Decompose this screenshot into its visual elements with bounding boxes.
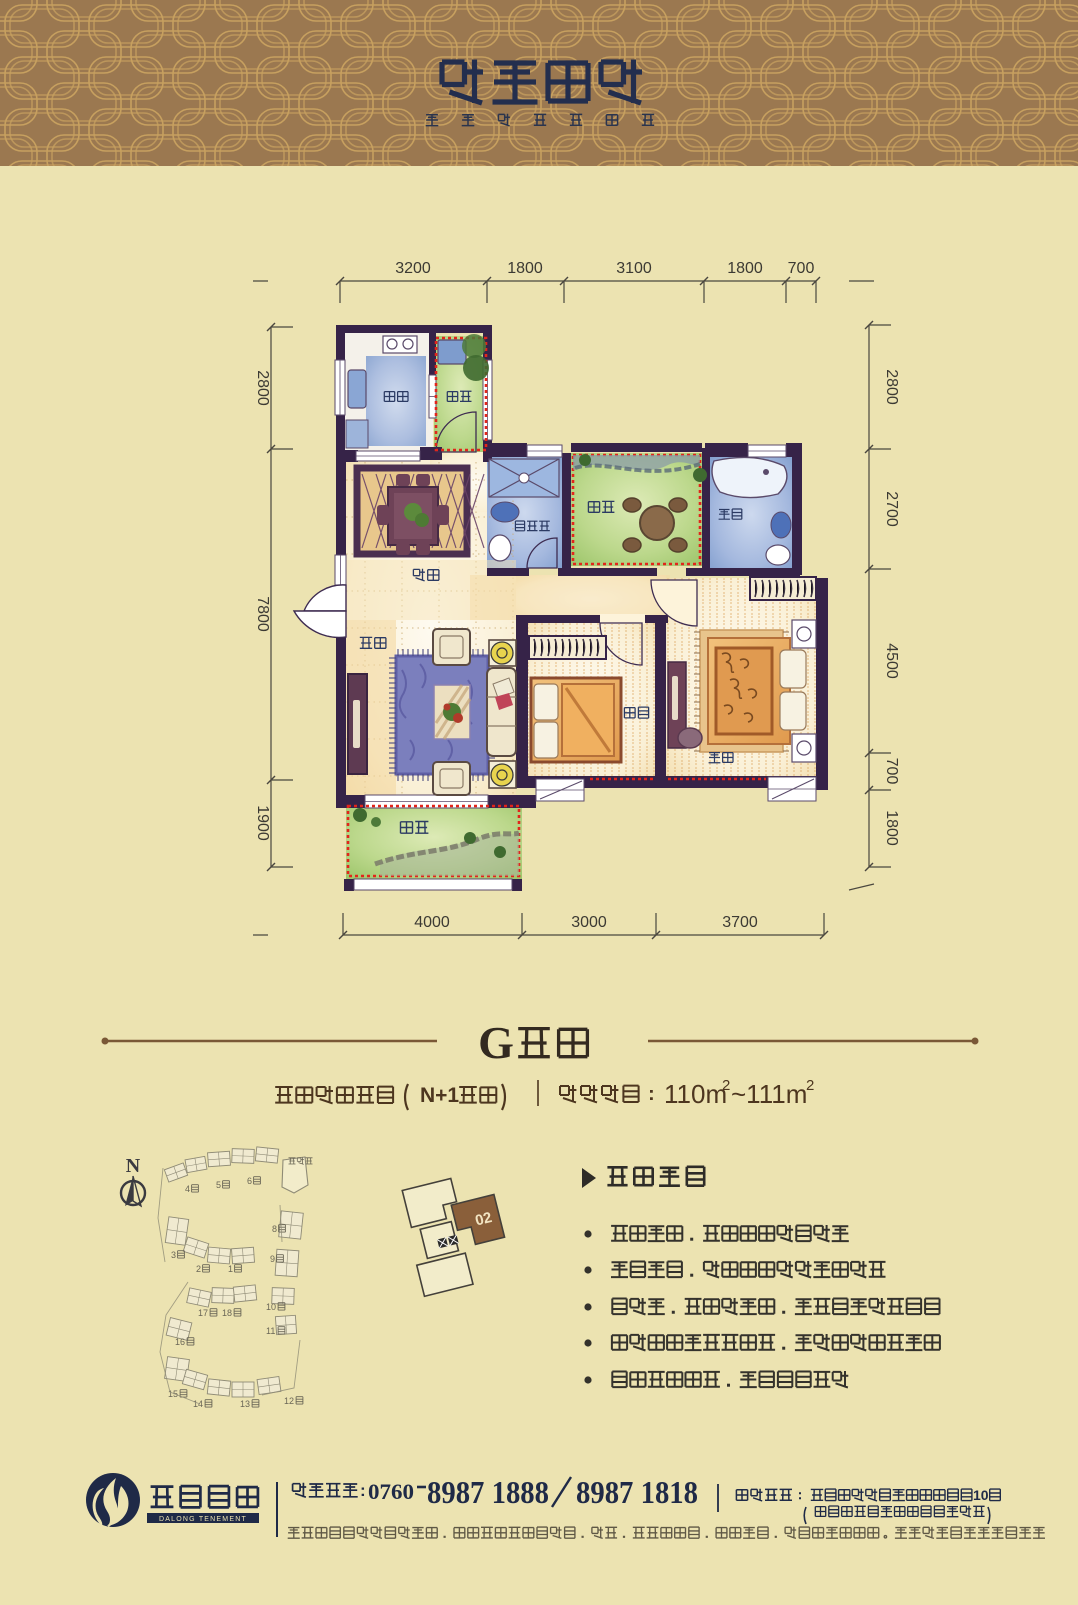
- svg-text:8987 1818: 8987 1818: [576, 1474, 698, 1510]
- svg-text:1: 1: [228, 1264, 233, 1274]
- svg-text:110m: 110m: [664, 1079, 727, 1109]
- svg-text:2: 2: [806, 1077, 814, 1094]
- svg-text:0760: 0760: [368, 1479, 414, 1504]
- svg-text:3000: 3000: [571, 914, 607, 931]
- svg-text:17: 17: [198, 1308, 208, 1318]
- svg-text:13: 13: [240, 1399, 250, 1409]
- svg-text:9: 9: [270, 1254, 275, 1264]
- svg-text:DALONG TENEMENT: DALONG TENEMENT: [159, 1516, 247, 1523]
- svg-text:11: 11: [266, 1326, 275, 1336]
- svg-text:2: 2: [196, 1264, 201, 1274]
- svg-text:4: 4: [185, 1184, 190, 1194]
- svg-text:14: 14: [193, 1399, 203, 1409]
- svg-text:1800: 1800: [507, 260, 543, 277]
- svg-text:3200: 3200: [395, 260, 431, 277]
- svg-text:4500: 4500: [883, 643, 900, 679]
- svg-text:700: 700: [883, 758, 900, 785]
- svg-text:N: N: [126, 1155, 141, 1177]
- svg-text:2800: 2800: [883, 369, 900, 405]
- svg-text:8987 1888: 8987 1888: [427, 1474, 549, 1510]
- svg-text:8: 8: [272, 1224, 277, 1234]
- svg-text:2800: 2800: [254, 370, 271, 406]
- svg-text:16: 16: [175, 1337, 185, 1347]
- svg-text:18: 18: [222, 1308, 232, 1318]
- svg-text:1900: 1900: [254, 805, 271, 841]
- svg-text:12: 12: [284, 1396, 294, 1406]
- svg-text:2700: 2700: [883, 491, 900, 527]
- svg-text:3700: 3700: [722, 914, 758, 931]
- svg-text:10: 10: [266, 1302, 276, 1312]
- svg-text:G: G: [478, 1017, 514, 1068]
- svg-text:~111m: ~111m: [731, 1079, 807, 1109]
- svg-text:6: 6: [247, 1176, 252, 1186]
- svg-text:3100: 3100: [616, 260, 652, 277]
- svg-text:5: 5: [216, 1180, 221, 1190]
- svg-text:700: 700: [788, 260, 815, 277]
- svg-text:2: 2: [722, 1077, 730, 1094]
- svg-text:1800: 1800: [727, 260, 763, 277]
- svg-text:N+1: N+1: [420, 1084, 459, 1107]
- svg-text:7800: 7800: [254, 596, 271, 632]
- svg-text:3: 3: [171, 1250, 176, 1260]
- svg-text:1800: 1800: [883, 810, 900, 846]
- svg-text:10: 10: [973, 1487, 989, 1503]
- svg-text::: :: [360, 1481, 366, 1500]
- svg-text:4000: 4000: [414, 914, 450, 931]
